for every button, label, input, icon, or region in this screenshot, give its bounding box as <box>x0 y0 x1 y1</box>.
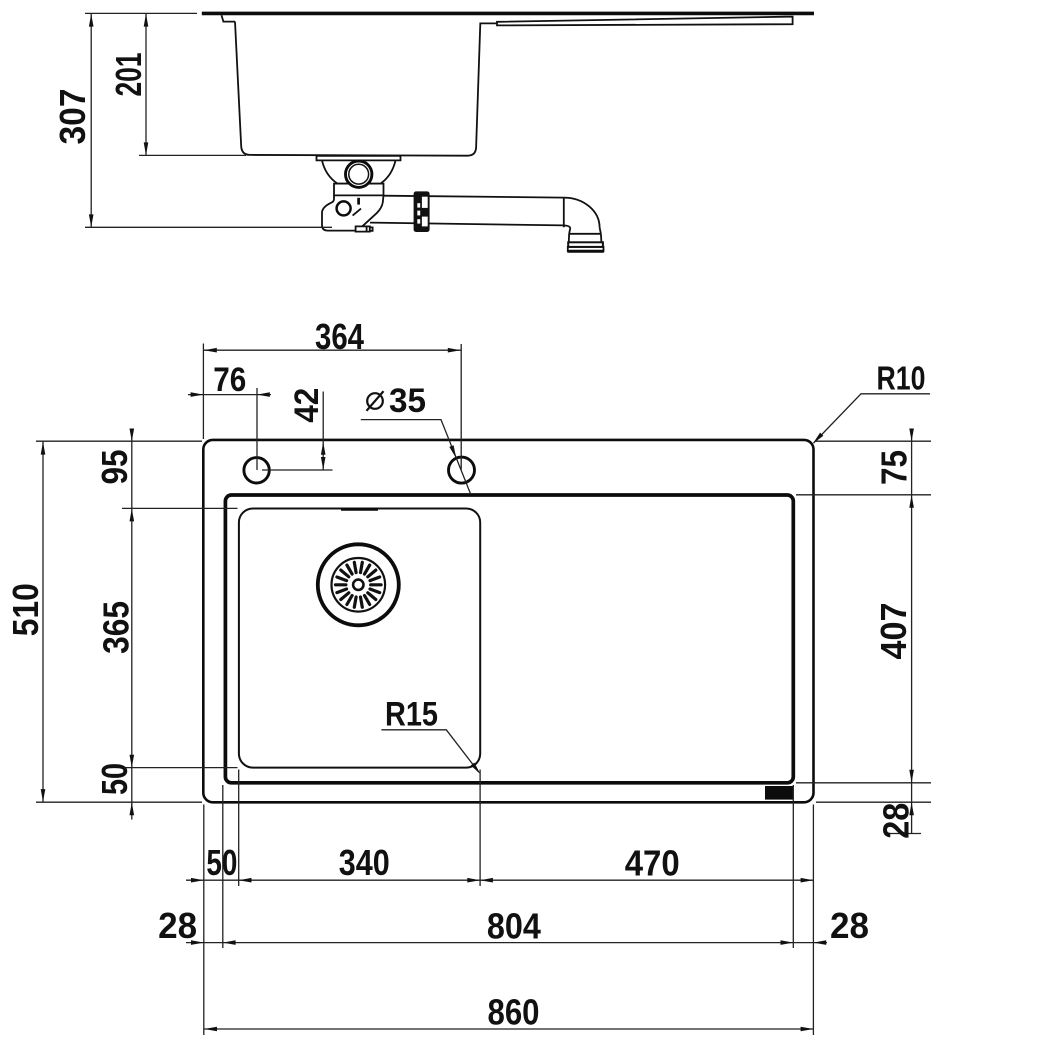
svg-text:804: 804 <box>487 905 541 946</box>
svg-text:95: 95 <box>94 450 135 485</box>
svg-text:407: 407 <box>873 603 914 660</box>
svg-text:365: 365 <box>96 601 137 654</box>
svg-text:307: 307 <box>52 89 93 145</box>
svg-text:28: 28 <box>876 803 917 839</box>
svg-text:R15: R15 <box>385 696 438 734</box>
svg-text:201: 201 <box>108 53 149 97</box>
svg-text:860: 860 <box>488 992 540 1033</box>
svg-text:340: 340 <box>339 842 390 883</box>
svg-text:R10: R10 <box>877 359 926 396</box>
svg-text:364: 364 <box>315 316 364 357</box>
svg-text:50: 50 <box>94 763 135 795</box>
svg-text:510: 510 <box>5 583 46 636</box>
svg-text:28: 28 <box>830 905 869 946</box>
svg-text:470: 470 <box>625 843 680 884</box>
svg-text:50: 50 <box>206 842 237 883</box>
svg-text:75: 75 <box>874 450 915 485</box>
svg-text:42: 42 <box>288 388 326 423</box>
svg-text:35: 35 <box>389 382 426 420</box>
svg-text:76: 76 <box>213 361 246 399</box>
svg-text:28: 28 <box>158 905 197 946</box>
